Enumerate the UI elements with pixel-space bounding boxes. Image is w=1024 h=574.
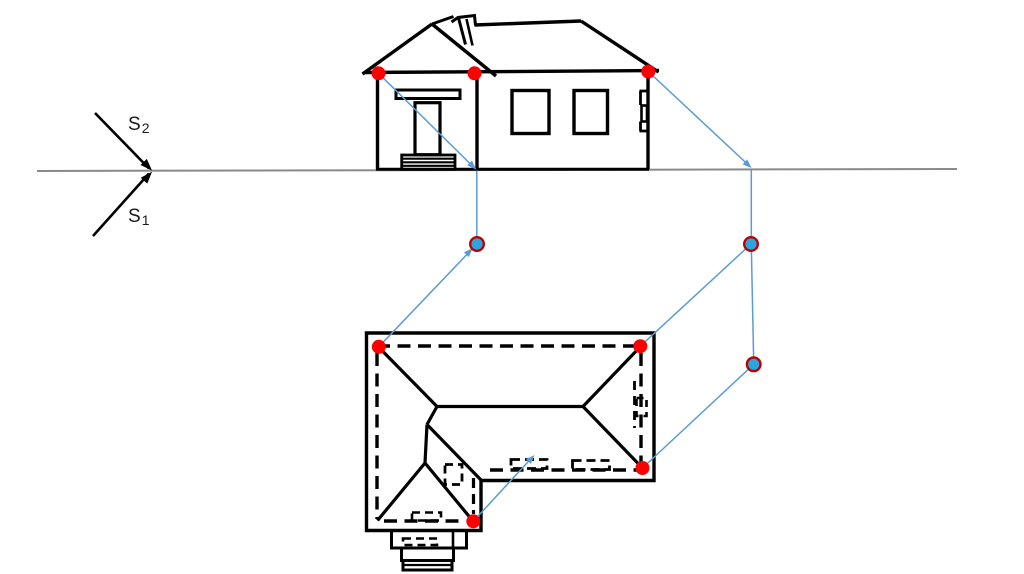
plan-step-b <box>402 548 454 561</box>
proj-dot-to-plan-tr <box>640 244 751 346</box>
plan-outline <box>367 333 655 531</box>
elev-main-right-slope <box>581 21 659 72</box>
elev-door <box>415 103 440 155</box>
red-dot-elev-left <box>372 66 386 80</box>
projection-diagram: S2 S1 <box>0 0 1024 574</box>
elev-chimney-inner <box>467 19 473 46</box>
elev-porch-beam <box>396 90 460 99</box>
station-label-s2-base: S <box>128 114 141 135</box>
red-dot-plan-wing <box>466 514 480 528</box>
plan-hip-top-right <box>583 347 640 407</box>
red-dot-plan-bottom-right <box>636 461 650 475</box>
proj-elev-right-diagonal <box>648 72 750 167</box>
red-dot-plan-top-right <box>633 339 647 353</box>
plan-hip-top-left <box>379 348 437 407</box>
plan-door-square-dashed <box>445 465 462 485</box>
red-dot-elev-right <box>641 65 655 79</box>
blue-dot-right-upper <box>744 237 758 251</box>
elev-gable-ridge <box>432 17 454 25</box>
elev-window-2 <box>574 91 608 134</box>
blue-dot-right-lower <box>747 358 761 372</box>
station-label-s2-sub: 2 <box>142 120 150 136</box>
elev-window-1 <box>512 91 549 134</box>
station-label-s2: S2 <box>128 115 149 135</box>
blue-dot-left <box>470 237 484 251</box>
elev-eave <box>364 71 659 73</box>
proj-dot-to-plan-br <box>643 364 754 468</box>
red-dot-plan-top-left <box>372 340 386 354</box>
plan-valley <box>427 425 481 481</box>
plan-step-dash-detail <box>403 539 437 546</box>
elev-gable-right-slope <box>432 24 496 76</box>
elev-main-ridge <box>475 21 582 25</box>
plan-window-2-dashed <box>573 461 610 470</box>
proj-right-vertical-lower <box>751 246 753 362</box>
station-label-s1-base: S <box>128 206 141 227</box>
station-label-s1-sub: 1 <box>142 212 150 228</box>
plan-ridge-connector <box>427 407 437 425</box>
elev-chimney-cap <box>452 16 476 26</box>
plan-wing-ridge <box>425 425 427 464</box>
diagram-svg <box>0 0 1024 574</box>
station-label-s1: S1 <box>128 207 149 227</box>
elev-gable-left-slope <box>363 24 433 74</box>
elev-side-door-handle <box>642 106 648 122</box>
red-dot-elev-middle <box>468 66 482 80</box>
elev-chimney-left <box>459 18 466 45</box>
